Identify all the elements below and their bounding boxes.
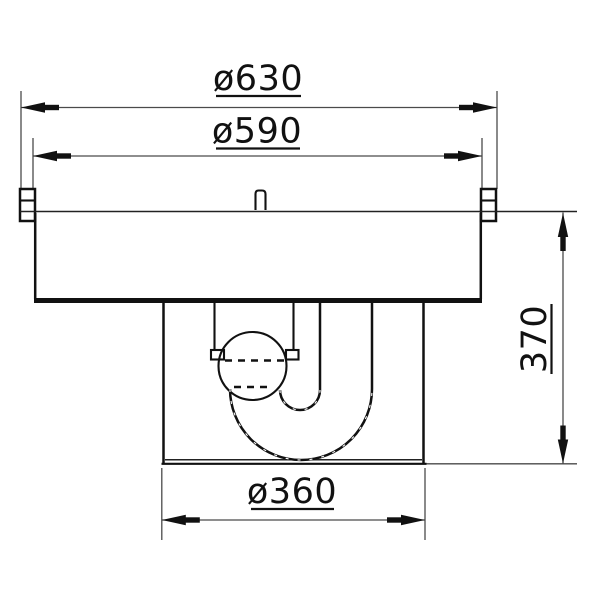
dimension-depth: 370 xyxy=(427,213,578,464)
u-bend-inner-arc xyxy=(280,390,320,410)
frame-left-lug xyxy=(20,189,35,221)
arrowhead-left-icon xyxy=(162,515,200,525)
arrowhead-right-icon xyxy=(444,151,482,161)
arrowhead-right-icon xyxy=(459,102,497,112)
cover-frame-section xyxy=(20,189,577,301)
float-ball xyxy=(219,332,287,400)
u-bend-inner-arc-texture xyxy=(280,390,320,410)
dimension-trap-box: ø360 xyxy=(162,468,425,540)
dimension-label-inner-diameter: ø590 xyxy=(212,112,302,152)
arrowhead-up-icon xyxy=(558,213,568,251)
arrowhead-left-icon xyxy=(33,151,71,161)
arrowhead-down-icon xyxy=(558,426,568,464)
arrowhead-left-icon xyxy=(21,102,59,112)
drawing-canvas: ø630 ø590 xyxy=(0,0,600,600)
dimension-label-outer-diameter: ø630 xyxy=(213,59,303,99)
siphon-trap xyxy=(211,303,372,460)
lifting-stub xyxy=(256,191,266,211)
dimension-inner-diameter: ø590 xyxy=(33,112,482,190)
dimension-label-depth: 370 xyxy=(515,305,555,373)
dip-tube-right-flange xyxy=(286,350,299,360)
dimension-label-trap-box: ø360 xyxy=(247,472,337,512)
arrowhead-right-icon xyxy=(387,515,425,525)
technical-drawing: ø630 ø590 xyxy=(0,0,600,600)
frame-right-lug xyxy=(481,189,496,221)
